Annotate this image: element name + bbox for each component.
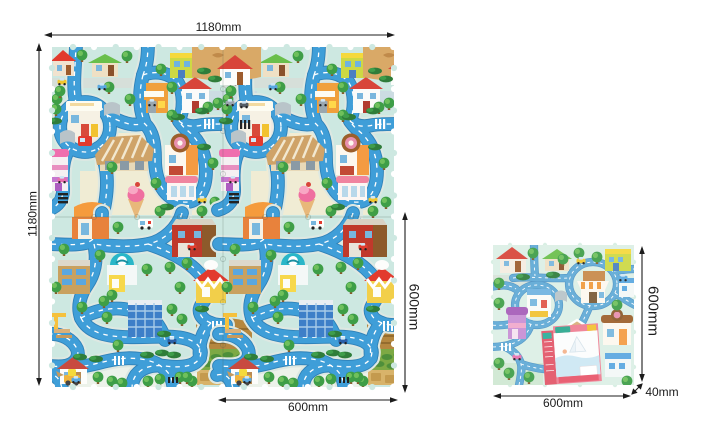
svg-text:40mm: 40mm <box>645 385 678 399</box>
svg-text:1180mm: 1180mm <box>26 191 40 237</box>
svg-text:600mm: 600mm <box>407 284 423 331</box>
svg-text:600mm: 600mm <box>543 396 583 410</box>
svg-text:600mm: 600mm <box>645 286 662 336</box>
svg-text:1180mm: 1180mm <box>196 20 242 34</box>
svg-text:600mm: 600mm <box>288 400 328 414</box>
